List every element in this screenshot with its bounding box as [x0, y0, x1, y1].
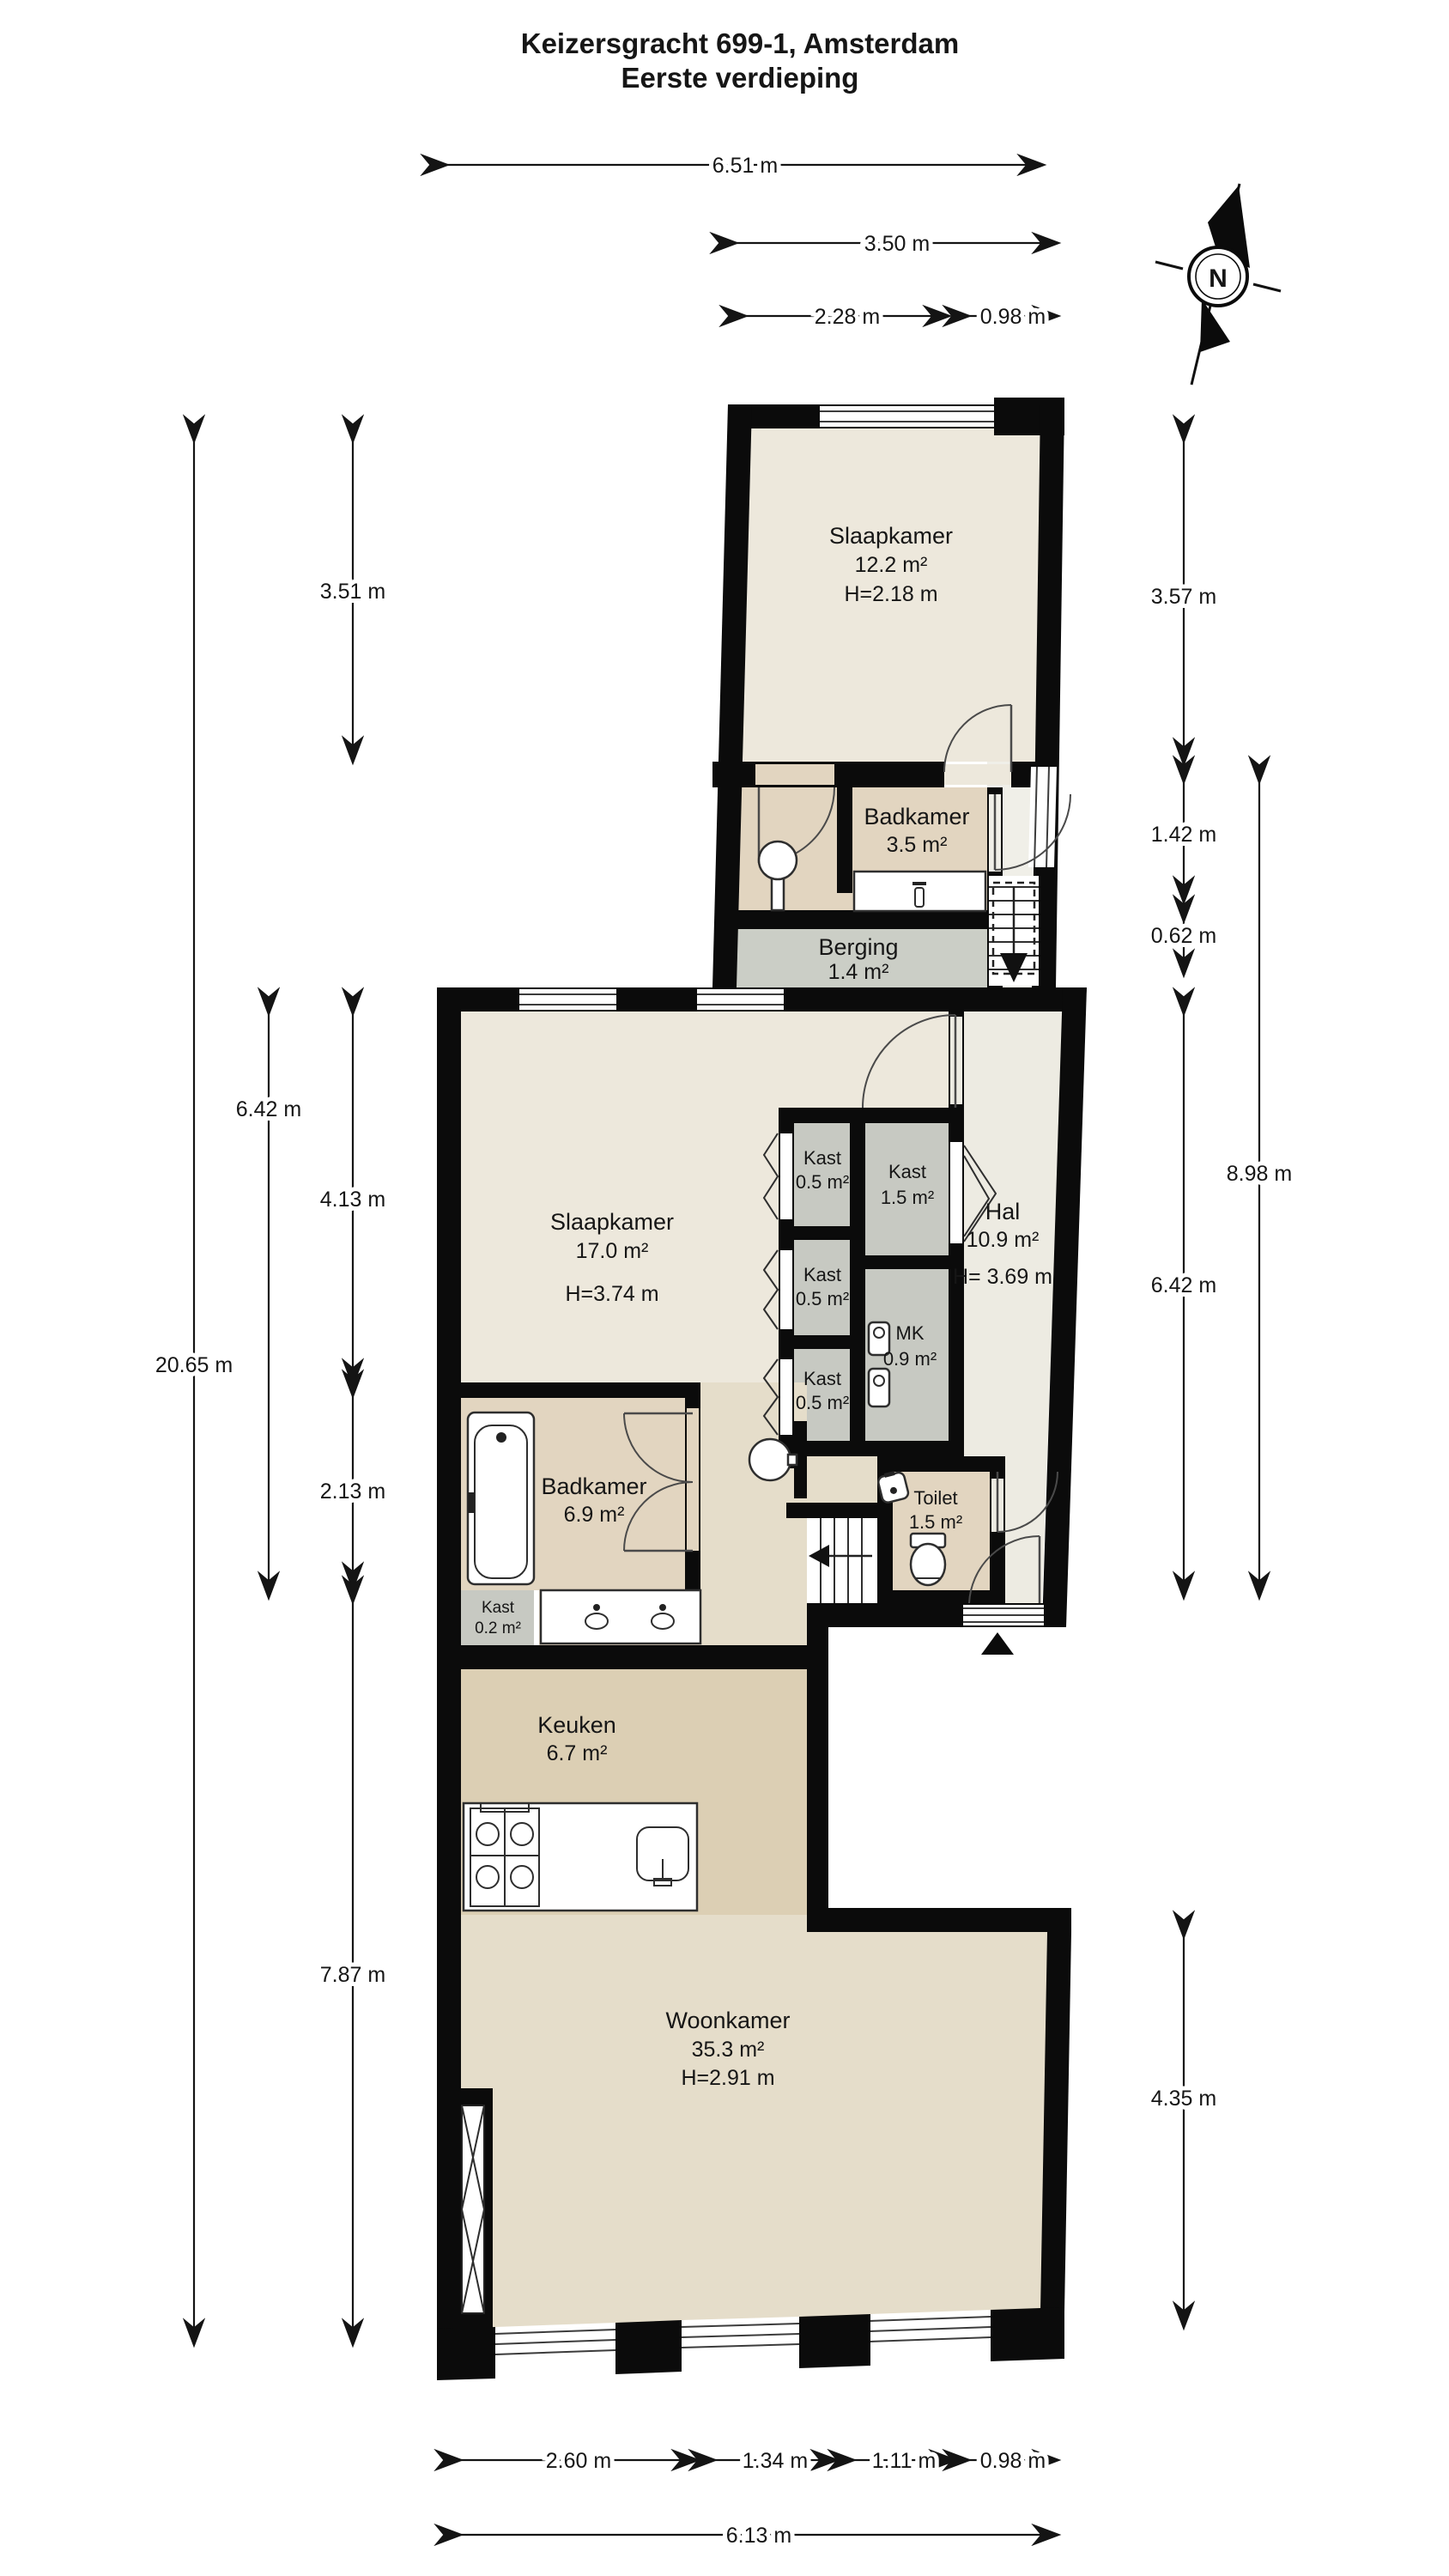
entrance-marker-icon [981, 1632, 1014, 1655]
dim-right-bathroom: 1.42 m [1151, 823, 1216, 847]
window-woonkamer-1 [495, 2323, 615, 2365]
wall-segment [807, 1908, 1071, 1932]
kitchen-counter-icon [464, 1803, 697, 1911]
wall-segment [799, 2314, 870, 2368]
dim-top-upper-block: 3.50 m [864, 232, 930, 256]
dim-right-storage: 0.62 m [1151, 924, 1216, 948]
toilet-icon [911, 1534, 945, 1585]
window-slaapkamer-1 [519, 989, 616, 1010]
label-kast3: Kast [803, 1368, 841, 1389]
room-woonkamer-floor [461, 1915, 1047, 2338]
label-kast2-area: 0.5 m² [796, 1288, 849, 1309]
wall-segment [837, 787, 852, 893]
label-badkamer: Badkamer [541, 1473, 646, 1499]
label-kastklein: Kast [482, 1599, 515, 1617]
wall-segment [725, 910, 987, 929]
wall-segment [807, 1627, 828, 1923]
wall-segment [437, 1382, 700, 1398]
label-slaapkamer-height: H=3.74 m [565, 1282, 658, 1306]
page-title: Keizersgracht 699-1, Amsterdam [521, 27, 960, 59]
label-berging: Berging [818, 934, 898, 960]
wall-segment [437, 1645, 807, 1669]
wall-segment [794, 1335, 850, 1349]
floorplan-canvas: Keizersgracht 699-1, Amsterdam Eerste ve… [0, 0, 1449, 2576]
dim-bottom-seg2: 1.34 m [743, 2449, 808, 2473]
page-subtitle: Eerste verdieping [621, 62, 859, 94]
label-mk: MK [896, 1322, 925, 1344]
dim-left-building-total: 20.65 m [155, 1353, 233, 1377]
floorplan-page: Keizersgracht 699-1, Amsterdam Eerste ve… [0, 0, 1449, 2576]
window-woonkamer-3 [870, 2310, 991, 2352]
label-hal-height: H= 3.69 m [953, 1265, 1052, 1289]
double-sink-counter-icon [541, 1590, 700, 1643]
stairs-lower [807, 1518, 877, 1603]
label-keuken: Keuken [537, 1712, 616, 1738]
dim-right-living: 4.35 m [1151, 2087, 1216, 2111]
dim-bottom-seg3: 1.11 m [872, 2449, 937, 2473]
label-hal-area: 10.9 m² [967, 1228, 1040, 1252]
compass-north-icon: N [1155, 184, 1281, 385]
label-slaapkamer-area: 17.0 m² [576, 1239, 649, 1263]
wall-segment [991, 2307, 1064, 2361]
label-slaapkamer-boven-area: 12.2 m² [855, 553, 928, 577]
wall-segment [786, 1503, 893, 1518]
label-kast3-area: 0.5 m² [796, 1392, 849, 1413]
wall-segment [794, 1226, 850, 1240]
label-slaapkamer: Slaapkamer [550, 1209, 674, 1235]
dim-left-bathroom: 2.13 m [320, 1479, 385, 1504]
dim-right-outer-total: 8.98 m [1227, 1162, 1292, 1186]
dim-top-total: 6.51 m [712, 154, 778, 178]
label-woonkamer-height: H=2.91 m [681, 2066, 774, 2090]
label-badkamer-boven-area: 3.5 m² [887, 833, 948, 857]
label-kast2: Kast [803, 1264, 841, 1285]
label-toilet-area: 1.5 m² [909, 1511, 962, 1533]
label-badkamer-boven: Badkamer [864, 804, 969, 829]
label-kastklein-area: 0.2 m² [475, 1619, 521, 1637]
wall-segment [865, 1255, 949, 1269]
fireplace-icon [462, 2105, 484, 2313]
dim-top-window: 2.28 m [815, 305, 880, 329]
label-kast1: Kast [803, 1147, 841, 1169]
label-keuken-area: 6.7 m² [547, 1741, 608, 1765]
label-berging-area: 1.4 m² [828, 960, 889, 984]
wall-segment [850, 1123, 865, 1441]
stairs-upper [989, 876, 1039, 986]
window-slaapkamer-boven [820, 406, 994, 427]
label-kastgroot: Kast [888, 1161, 926, 1182]
dim-bottom-seg4: 0.98 m [980, 2449, 1046, 2473]
label-toilet: Toilet [913, 1487, 957, 1509]
label-woonkamer: Woonkamer [665, 2008, 790, 2033]
window-woonkamer-2 [682, 2317, 799, 2358]
dim-bottom-total: 6.13 m [726, 2524, 791, 2548]
wall-segment [877, 1456, 1005, 1472]
dim-left-middle-total: 6.42 m [236, 1097, 301, 1121]
window-slaapkamer-2 [697, 989, 784, 1010]
label-kast1-area: 0.5 m² [796, 1171, 849, 1193]
compass-label: N [1209, 264, 1228, 293]
dim-top-stair-bay: 0.98 m [980, 305, 1046, 329]
label-slaapkamer-boven: Slaapkamer [829, 523, 953, 549]
wall-segment [779, 1108, 964, 1123]
label-slaapkamer-boven-height: H=2.18 m [844, 582, 937, 606]
label-mk-area: 0.9 m² [883, 1348, 937, 1370]
dim-left-middle-upper: 4.13 m [320, 1188, 385, 1212]
wall-segment [437, 2327, 495, 2380]
bathroom-counter-icon [854, 872, 985, 911]
label-badkamer-area: 6.9 m² [564, 1503, 625, 1527]
label-kastgroot-area: 1.5 m² [881, 1187, 934, 1208]
dim-bottom-seg1: 2.60 m [546, 2449, 611, 2473]
dim-right-middle-total: 6.42 m [1151, 1273, 1216, 1297]
label-woonkamer-area: 35.3 m² [692, 2038, 765, 2062]
wall-segment [615, 2320, 682, 2374]
dim-left-upper: 3.51 m [320, 580, 385, 604]
label-hal: Hal [985, 1199, 1021, 1224]
bathtub-icon [468, 1413, 534, 1584]
dim-left-lower: 7.87 m [320, 1963, 385, 1987]
dim-right-upper: 3.57 m [1151, 585, 1216, 609]
